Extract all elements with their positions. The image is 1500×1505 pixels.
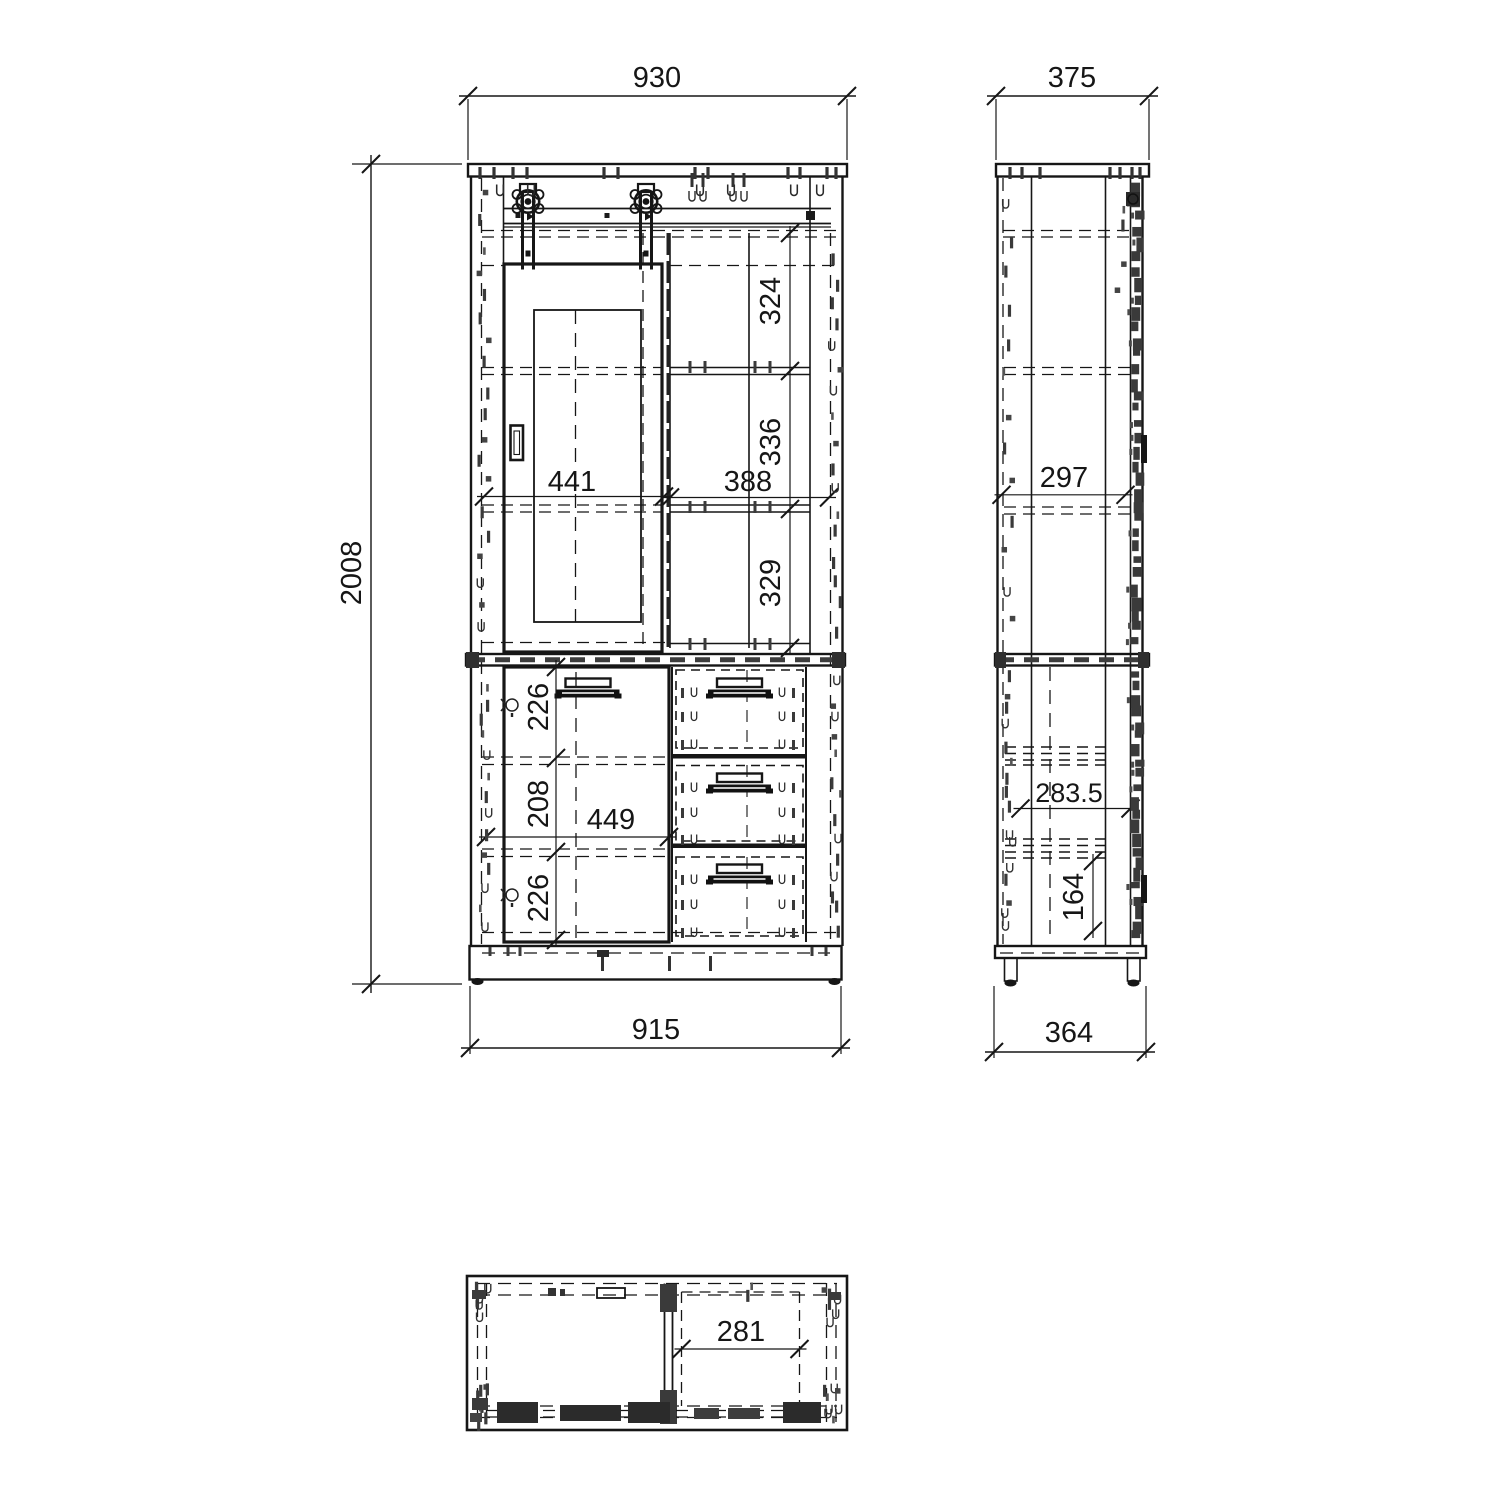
svg-text:930: 930 — [633, 62, 681, 94]
svg-text:364: 364 — [1045, 1017, 1093, 1049]
svg-text:336: 336 — [755, 418, 787, 466]
svg-text:283.5: 283.5 — [1035, 778, 1103, 808]
svg-text:329: 329 — [755, 559, 787, 607]
svg-text:226: 226 — [523, 874, 555, 922]
svg-text:388: 388 — [724, 466, 772, 498]
svg-text:915: 915 — [632, 1014, 680, 1046]
svg-text:297: 297 — [1040, 462, 1088, 494]
svg-text:441: 441 — [548, 466, 596, 498]
svg-text:375: 375 — [1048, 62, 1096, 94]
svg-text:449: 449 — [587, 804, 635, 836]
svg-text:281: 281 — [717, 1316, 765, 1348]
svg-text:208: 208 — [523, 780, 555, 828]
svg-text:226: 226 — [523, 683, 555, 731]
svg-text:324: 324 — [755, 277, 787, 325]
svg-text:164: 164 — [1058, 873, 1090, 921]
svg-text:2008: 2008 — [336, 541, 368, 606]
